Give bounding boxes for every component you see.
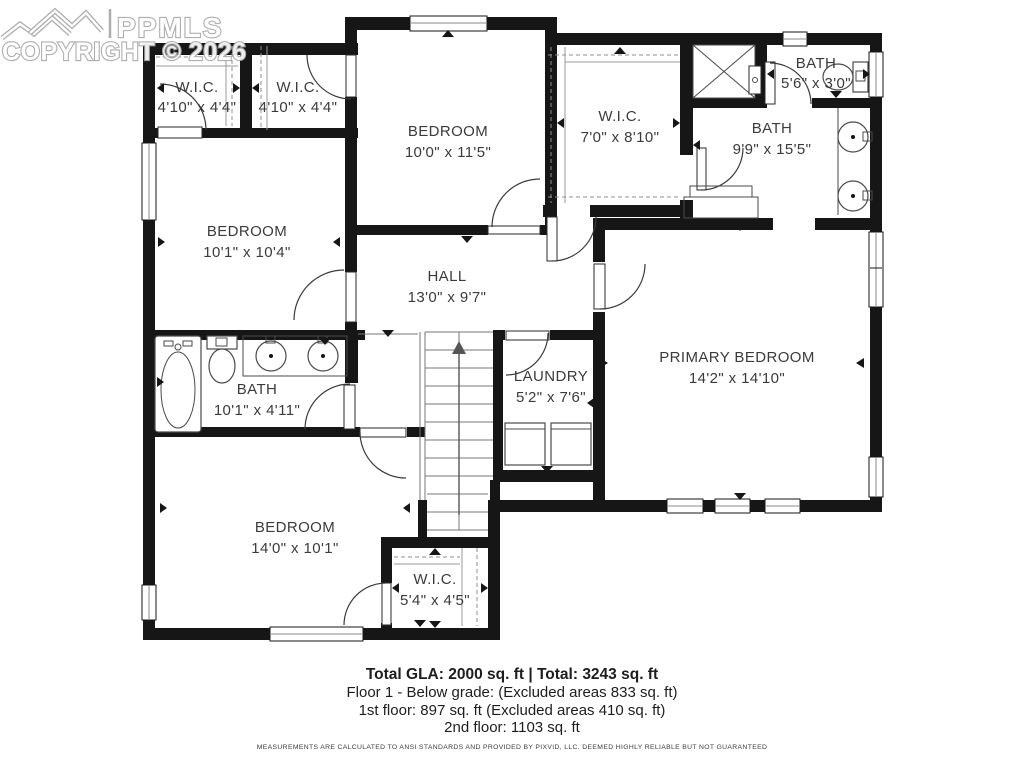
room-dims-bath-small: 5'6" x 3'0" bbox=[781, 75, 851, 92]
window bbox=[869, 457, 883, 497]
summary-second-floor: 2nd floor: 1103 sq. ft bbox=[0, 719, 1024, 737]
room-dims-wic2: 4'10" x 4'4" bbox=[259, 99, 338, 116]
floor-plan-drawing: W.I.C. 4'10" x 4'4" W.I.C. 4'10" x 4'4" … bbox=[0, 0, 1024, 660]
dryer bbox=[551, 423, 591, 465]
room-dims-hall: 13'0" x 9'7" bbox=[408, 289, 487, 306]
room-dims-wic4: 5'4" x 4'5" bbox=[400, 592, 470, 609]
shower bbox=[693, 45, 761, 98]
window bbox=[410, 16, 487, 31]
room-dims-bath-big: 9'9" x 15'5" bbox=[733, 141, 812, 158]
room-dims-wic1: 4'10" x 4'4" bbox=[158, 99, 237, 116]
watermark: PPMLS COPYRIGHT © 2026 bbox=[2, 9, 247, 66]
room-label-bath-big: BATH bbox=[752, 120, 793, 137]
vanity-double bbox=[243, 336, 347, 376]
area-summary: Total GLA: 2000 sq. ft | Total: 3243 sq.… bbox=[0, 666, 1024, 751]
watermark-copyright: COPYRIGHT © 2026 bbox=[2, 38, 247, 66]
window bbox=[667, 499, 703, 513]
room-dims-bedroom-left: 10'1" x 10'4" bbox=[203, 244, 290, 261]
floor-plan-page: W.I.C. 4'10" x 4'4" W.I.C. 4'10" x 4'4" … bbox=[0, 0, 1024, 767]
room-dims-primary: 14'2" x 14'10" bbox=[689, 370, 785, 387]
room-label-bath-small: BATH bbox=[796, 55, 837, 72]
room-label-hall: HALL bbox=[427, 268, 466, 285]
vanity-double bbox=[838, 108, 872, 215]
window bbox=[869, 232, 883, 307]
toilet bbox=[207, 336, 237, 383]
summary-totals: Total GLA: 2000 sq. ft | Total: 3243 sq.… bbox=[0, 666, 1024, 684]
window bbox=[715, 499, 750, 513]
window bbox=[869, 52, 883, 97]
room-label-laundry: LAUNDRY bbox=[514, 368, 588, 385]
door bbox=[488, 179, 540, 234]
stairs-up-arrow-icon bbox=[452, 341, 466, 515]
summary-first-floor: 1st floor: 897 sq. ft (Excluded areas 41… bbox=[0, 702, 1024, 720]
window bbox=[142, 143, 156, 220]
room-label-bedroom-left: BEDROOM bbox=[207, 223, 287, 240]
room-label-bedroom-top: BEDROOM bbox=[408, 123, 488, 140]
room-dims-wic3: 7'0" x 8'10" bbox=[581, 129, 660, 146]
door bbox=[305, 384, 355, 429]
room-dims-bedroom-top: 10'0" x 11'5" bbox=[405, 144, 491, 161]
room-dims-laundry: 5'2" x 7'6" bbox=[516, 389, 586, 406]
room-label-wic1: W.I.C. bbox=[175, 79, 218, 96]
window bbox=[142, 585, 156, 620]
mountains-logo-icon bbox=[2, 9, 110, 38]
door bbox=[294, 270, 356, 322]
cabinet bbox=[684, 186, 758, 218]
room-label-wic3: W.I.C. bbox=[598, 108, 641, 125]
door bbox=[360, 428, 406, 478]
room-label-bedroom-bottom: BEDROOM bbox=[255, 519, 335, 536]
door bbox=[594, 264, 645, 309]
room-label-bath-left: BATH bbox=[237, 381, 278, 398]
disclaimer: MEASUREMENTS ARE CALCULATED TO ANSI STAN… bbox=[0, 744, 1024, 751]
window bbox=[783, 32, 807, 46]
washer bbox=[505, 423, 545, 465]
window bbox=[765, 499, 800, 513]
room-label-wic4: W.I.C. bbox=[413, 571, 456, 588]
door bbox=[344, 583, 391, 625]
door bbox=[547, 217, 596, 261]
bathtub bbox=[155, 336, 201, 432]
room-label-wic2: W.I.C. bbox=[276, 79, 319, 96]
window bbox=[270, 627, 363, 641]
room-dims-bath-left: 10'1" x 4'11" bbox=[214, 402, 300, 419]
summary-floor1: Floor 1 - Below grade: (Excluded areas 8… bbox=[0, 684, 1024, 702]
room-dims-bedroom-bottom: 14'0" x 10'1" bbox=[251, 540, 338, 557]
room-label-primary: PRIMARY BEDROOM bbox=[659, 349, 814, 366]
